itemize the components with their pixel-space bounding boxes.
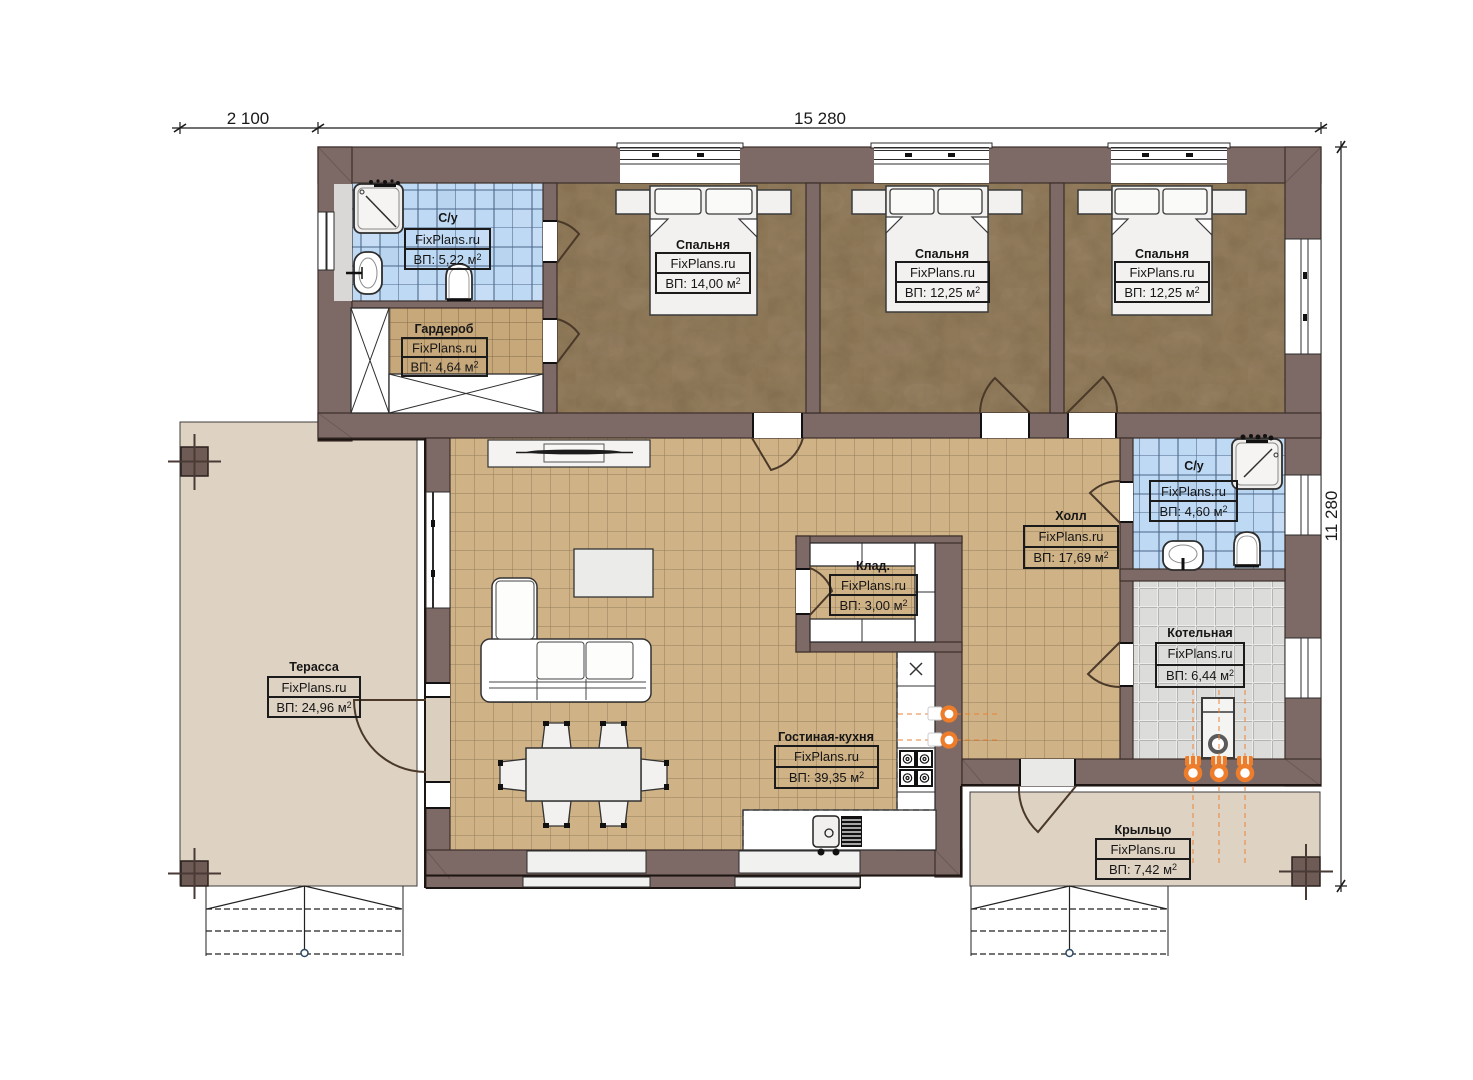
svg-text:FixPlans.ru: FixPlans.ru xyxy=(415,232,480,247)
svg-text:Гардероб: Гардероб xyxy=(414,322,473,336)
svg-text:ВП: 39,35 м2: ВП: 39,35 м2 xyxy=(789,770,864,785)
svg-text:Терасса: Терасса xyxy=(289,660,340,674)
svg-text:С/у: С/у xyxy=(438,211,458,225)
svg-text:Котельная: Котельная xyxy=(1167,626,1232,640)
svg-text:Спальня: Спальня xyxy=(915,247,969,261)
svg-text:Спальня: Спальня xyxy=(676,238,730,252)
svg-text:С/у: С/у xyxy=(1184,459,1204,473)
svg-text:ВП: 14,00 м2: ВП: 14,00 м2 xyxy=(665,276,740,291)
svg-text:ВП: 6,44 м2: ВП: 6,44 м2 xyxy=(1166,668,1234,683)
svg-text:FixPlans.ru: FixPlans.ru xyxy=(794,749,859,764)
svg-text:FixPlans.ru: FixPlans.ru xyxy=(1167,646,1232,661)
svg-text:FixPlans.ru: FixPlans.ru xyxy=(1110,842,1175,857)
svg-text:ВП: 7,42 м2: ВП: 7,42 м2 xyxy=(1109,862,1177,877)
svg-text:2 100: 2 100 xyxy=(227,109,270,128)
svg-text:FixPlans.ru: FixPlans.ru xyxy=(910,265,975,280)
svg-text:FixPlans.ru: FixPlans.ru xyxy=(412,341,477,356)
svg-text:FixPlans.ru: FixPlans.ru xyxy=(281,680,346,695)
svg-text:Спальня: Спальня xyxy=(1135,247,1189,261)
svg-text:FixPlans.ru: FixPlans.ru xyxy=(841,578,906,593)
svg-text:ВП: 5,22 м2: ВП: 5,22 м2 xyxy=(413,252,481,267)
svg-text:Клад.: Клад. xyxy=(856,559,890,573)
svg-text:ВП: 12,25 м2: ВП: 12,25 м2 xyxy=(905,285,980,300)
svg-text:ВП: 4,64 м2: ВП: 4,64 м2 xyxy=(410,360,478,375)
svg-text:ВП: 24,96 м2: ВП: 24,96 м2 xyxy=(276,700,351,715)
svg-text:ВП: 12,25 м2: ВП: 12,25 м2 xyxy=(1124,285,1199,300)
svg-text:FixPlans.ru: FixPlans.ru xyxy=(1038,529,1103,544)
svg-text:FixPlans.ru: FixPlans.ru xyxy=(1129,265,1194,280)
svg-text:ВП: 4,60 м2: ВП: 4,60 м2 xyxy=(1159,504,1227,519)
svg-text:ВП: 3,00 м2: ВП: 3,00 м2 xyxy=(839,598,907,613)
svg-text:11 280: 11 280 xyxy=(1322,491,1341,542)
svg-text:Крыльцо: Крыльцо xyxy=(1115,823,1172,837)
svg-text:15 280: 15 280 xyxy=(794,109,846,128)
svg-text:FixPlans.ru: FixPlans.ru xyxy=(1161,484,1226,499)
svg-text:Холл: Холл xyxy=(1055,509,1086,523)
svg-text:ВП: 17,69 м2: ВП: 17,69 м2 xyxy=(1033,550,1108,565)
svg-text:Гостиная-кухня: Гостиная-кухня xyxy=(778,730,874,744)
svg-text:FixPlans.ru: FixPlans.ru xyxy=(670,256,735,271)
